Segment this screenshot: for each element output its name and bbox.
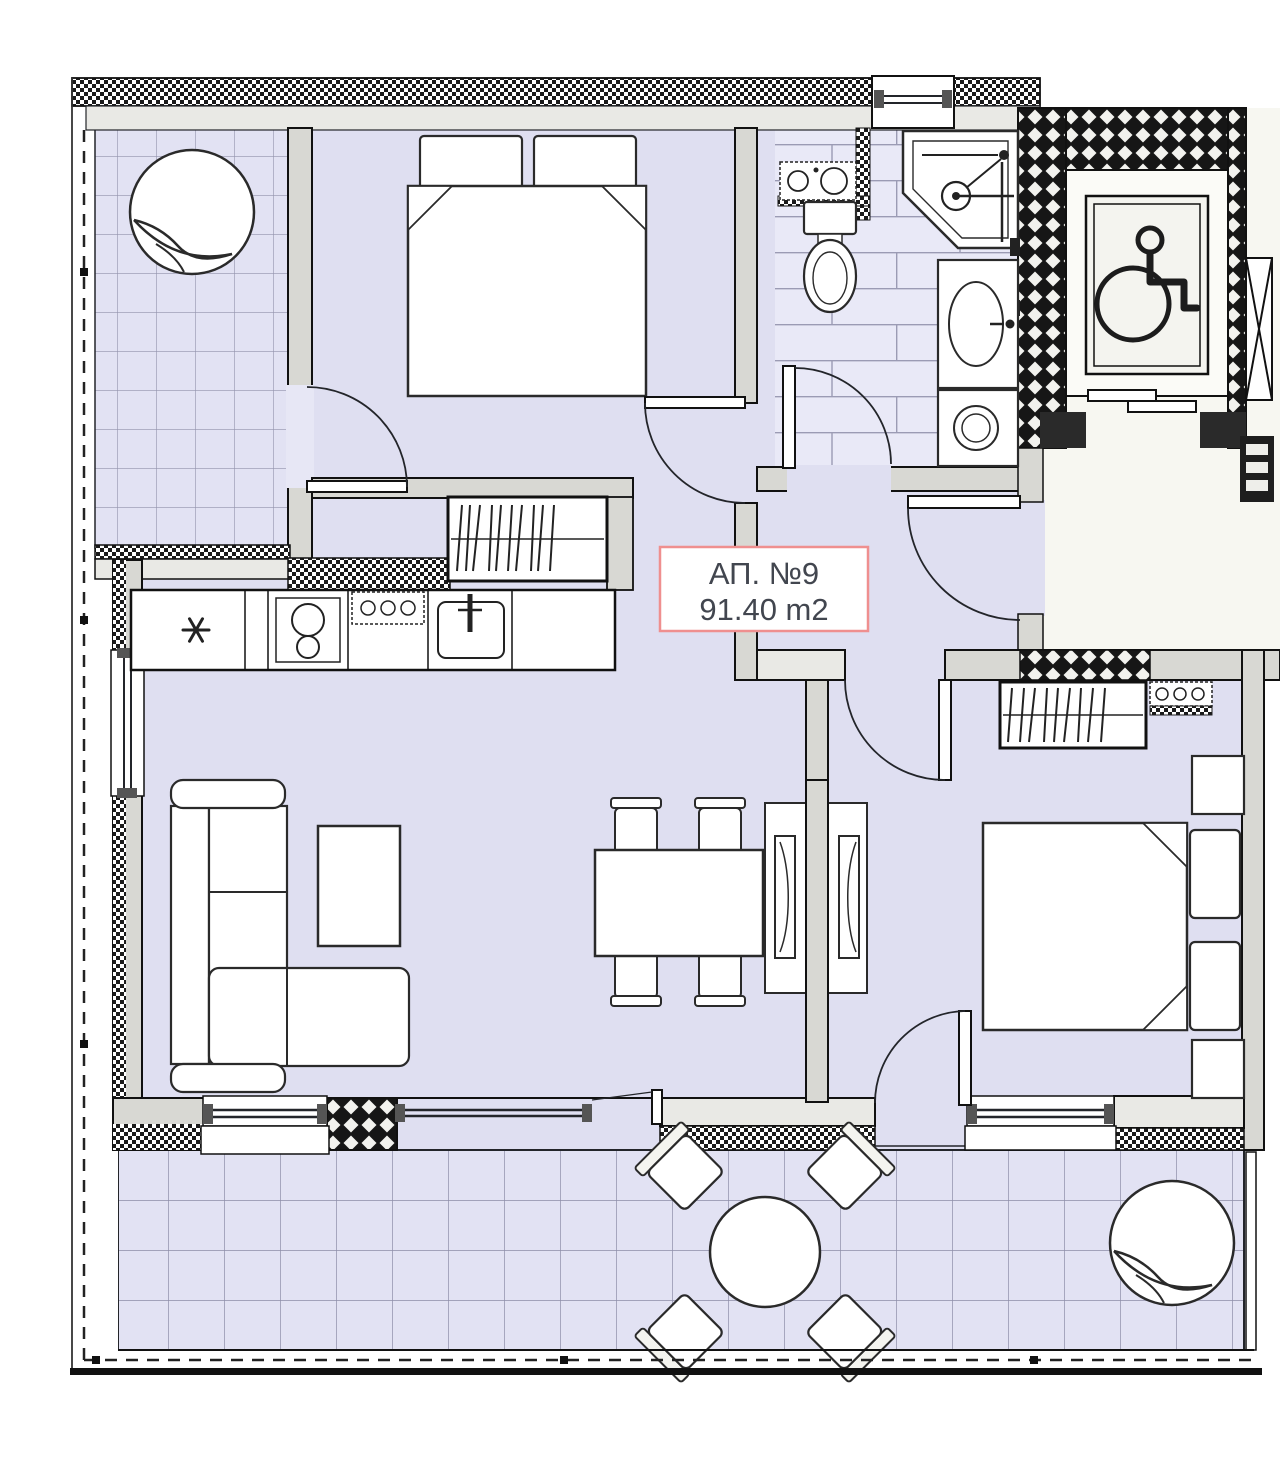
wall-bottom-pier bbox=[327, 1098, 397, 1150]
plant-icon bbox=[1110, 1181, 1234, 1305]
coffee-table bbox=[318, 826, 400, 946]
elevator-jamb-right bbox=[1200, 412, 1246, 448]
corridor-electrical-panel bbox=[1240, 436, 1274, 502]
wall-bedroom1-right-upper bbox=[735, 128, 757, 403]
elevator-door-panel bbox=[1128, 401, 1196, 412]
wall-bottom-c-hatch bbox=[1114, 1128, 1244, 1150]
balcony-door-opening bbox=[286, 385, 314, 488]
kitchen-electrical-panel bbox=[352, 592, 424, 624]
vent-panel bbox=[780, 162, 856, 200]
wall-elevator-top bbox=[1040, 108, 1245, 170]
wall-stub-wardrobe bbox=[607, 497, 633, 590]
window-bedroom2-sill bbox=[965, 1126, 1116, 1150]
dining-chair bbox=[695, 798, 745, 856]
wall-elevator-left bbox=[1018, 108, 1066, 448]
pillow bbox=[534, 136, 636, 192]
wall-left-hatch bbox=[113, 560, 126, 1102]
window-left bbox=[111, 650, 144, 796]
wall-elevator-right bbox=[1228, 108, 1246, 448]
wall-entrance-upper bbox=[1018, 448, 1043, 502]
outer-frame-bottom bbox=[70, 1368, 1262, 1375]
left-margin-2 bbox=[93, 1150, 118, 1354]
wall-balcony-bottom-hatch bbox=[95, 545, 290, 559]
washing-machine bbox=[938, 390, 1018, 466]
dining-chair bbox=[611, 950, 661, 1006]
apartment-area: 91.40 m2 bbox=[699, 592, 828, 627]
pillow bbox=[1190, 830, 1240, 918]
plant-icon bbox=[130, 150, 254, 274]
pillow bbox=[420, 136, 522, 192]
nightstand bbox=[1192, 1040, 1244, 1098]
wall-bottom-b bbox=[660, 1098, 875, 1126]
vanity-sink bbox=[938, 260, 1018, 388]
wall-bottom-c bbox=[1114, 1096, 1244, 1128]
apartment-number: АП. №9 bbox=[709, 556, 819, 591]
wall-kitchen-hatch bbox=[288, 558, 450, 592]
sofa-armrest bbox=[171, 780, 285, 808]
wall-bedroom2-top-hatch bbox=[1020, 650, 1150, 680]
wall-partition-over bbox=[806, 780, 828, 1102]
nightstand bbox=[1192, 756, 1244, 814]
mattress bbox=[408, 186, 646, 396]
mattress bbox=[983, 823, 1187, 1030]
terrace-right-rail bbox=[1246, 1152, 1256, 1350]
floor-plan-page: АП. №9 91.40 m2 bbox=[0, 0, 1280, 1476]
floor-plan-canvas: АП. №9 91.40 m2 bbox=[0, 0, 1280, 1476]
wardrobe-bedroom2 bbox=[1000, 682, 1146, 748]
window-living-sill bbox=[201, 1126, 329, 1154]
dining-chair bbox=[695, 950, 745, 1006]
wardrobe-hall bbox=[448, 497, 607, 581]
entrance-threshold bbox=[1018, 500, 1045, 616]
bathroom-door-opening bbox=[787, 465, 891, 493]
sofa-armrest bbox=[171, 1064, 285, 1092]
elevator-jamb-left bbox=[1040, 412, 1086, 448]
wall-bottom-a-hatch bbox=[113, 1124, 205, 1150]
wall-entrance-lower bbox=[1018, 614, 1043, 652]
pillow bbox=[1190, 942, 1240, 1030]
dining-chair bbox=[611, 798, 661, 856]
x-brace-icon bbox=[1246, 258, 1272, 400]
wall-right bbox=[1242, 650, 1264, 1150]
bedroom2-electrical-panel bbox=[1150, 682, 1212, 715]
apartment-label: АП. №9 91.40 m2 bbox=[660, 547, 868, 631]
toilet bbox=[804, 202, 856, 312]
elevator-door-panel bbox=[1088, 390, 1156, 401]
wall-balcony-bedroom bbox=[288, 128, 312, 562]
kitchen bbox=[131, 590, 615, 670]
wall-stub-hall bbox=[757, 650, 845, 680]
dining-table bbox=[595, 850, 763, 956]
